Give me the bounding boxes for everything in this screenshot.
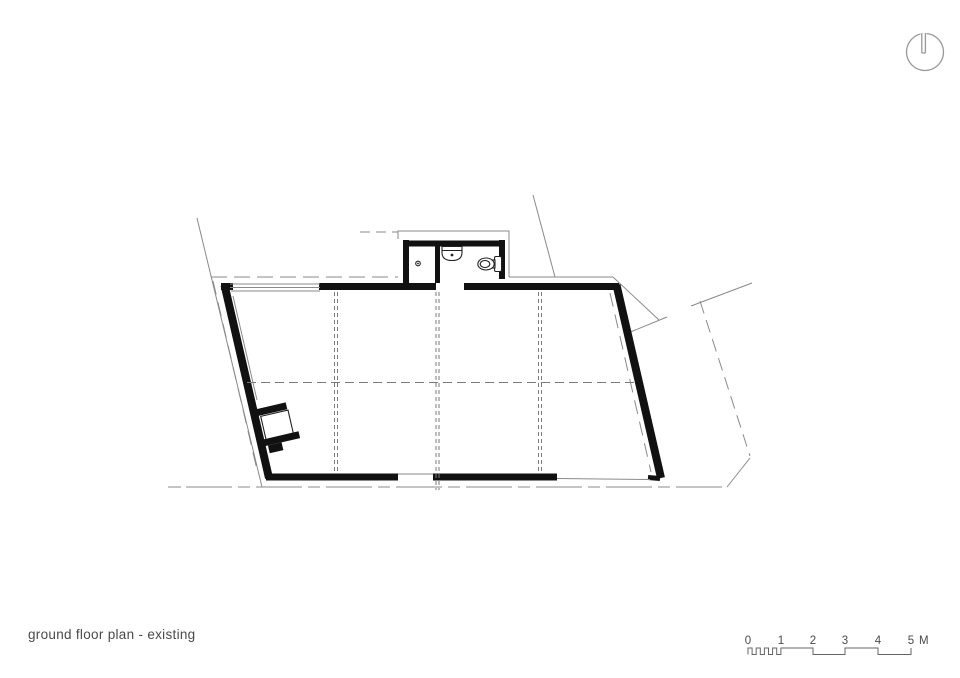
floor-drain-dot (416, 261, 421, 266)
scale-label-0: 0 (745, 635, 751, 647)
eaves-line-left (213, 281, 258, 474)
sink-bowl (442, 247, 462, 261)
scale-label-1: 1 (778, 635, 784, 647)
site-boundary-lines (168, 195, 752, 487)
scale-label-2: 2 (810, 635, 816, 647)
drawing-title: ground floor plan - existing (28, 627, 196, 642)
toilet-bowl-inner (480, 261, 490, 268)
wall-right (617, 285, 662, 478)
scale-bar-line (748, 648, 911, 655)
north-arrow-icon (907, 32, 944, 71)
site-line-ne-1 (628, 317, 667, 333)
building-walls (221, 285, 661, 479)
toilet-fixture (478, 257, 502, 272)
drain-center (417, 263, 419, 265)
window-bottom-line (557, 479, 650, 480)
sink-fixture (442, 247, 462, 261)
scale-label-3: 3 (842, 635, 848, 647)
site-line-annex (533, 195, 555, 277)
floor-plan-canvas: 0 1 2 3 4 5 M (0, 0, 960, 678)
site-line-dashed-right (700, 301, 750, 456)
site-line-ne-2 (691, 283, 752, 306)
wall-bottom-corner (648, 478, 660, 479)
scale-bar: 0 1 2 3 4 5 M (745, 635, 929, 655)
drawing-sheet: 0 1 2 3 4 5 M ground floor plan - existi… (0, 0, 960, 678)
scale-unit: M (919, 635, 929, 647)
scale-label-4: 4 (875, 635, 882, 647)
site-corner-line (727, 458, 750, 487)
window-lines (230, 284, 650, 480)
ceiling-grid (247, 292, 637, 490)
scale-label-5: 5 (908, 635, 914, 647)
sink-drain (451, 254, 454, 257)
wall-left (225, 285, 270, 478)
